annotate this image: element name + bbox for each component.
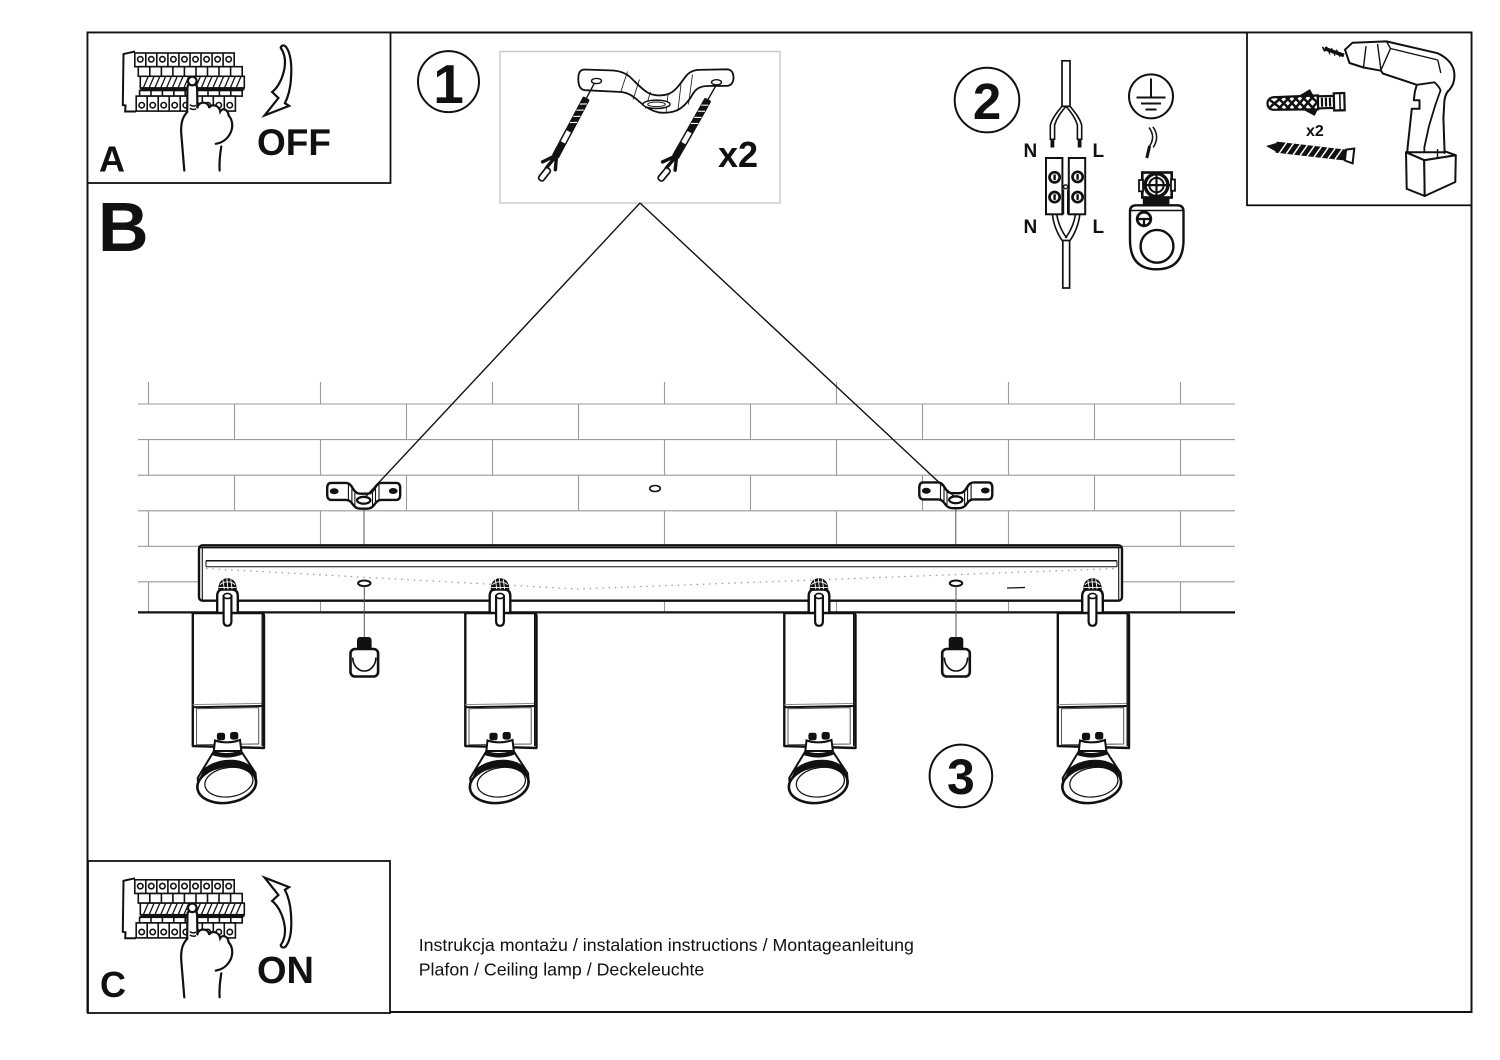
svg-text:N: N (1024, 217, 1038, 238)
svg-text:B: B (98, 188, 149, 266)
svg-text:x2: x2 (1306, 123, 1324, 140)
svg-text:N: N (1024, 141, 1038, 162)
svg-text:A: A (99, 139, 125, 180)
svg-text:ON: ON (257, 950, 314, 992)
svg-text:Instrukcja montażu / instalati: Instrukcja montażu / instalation instruc… (419, 935, 914, 955)
svg-text:3: 3 (947, 749, 975, 805)
svg-text:L: L (1093, 141, 1105, 162)
svg-text:2: 2 (973, 73, 1001, 130)
svg-text:C: C (100, 964, 126, 1005)
svg-text:1: 1 (433, 53, 464, 115)
svg-text:OFF: OFF (257, 122, 331, 163)
svg-text:x2: x2 (718, 134, 758, 175)
svg-text:L: L (1093, 217, 1105, 238)
svg-text:Plafon / Ceiling lamp / Deckel: Plafon / Ceiling lamp / Deckeleuchte (419, 960, 705, 980)
